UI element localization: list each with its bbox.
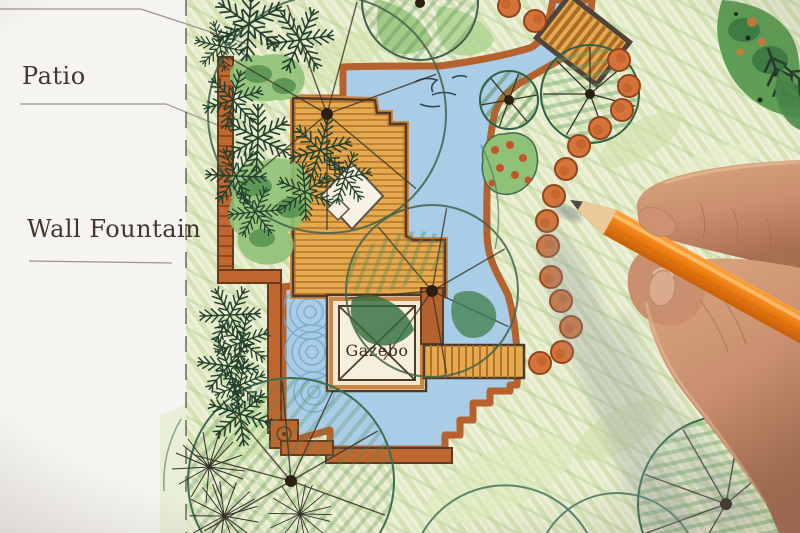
vignette bbox=[0, 0, 800, 533]
landscape-plan-photo: Patio Wall Fountain bbox=[0, 0, 800, 533]
plan-drawing: Patio Wall Fountain bbox=[0, 0, 800, 533]
